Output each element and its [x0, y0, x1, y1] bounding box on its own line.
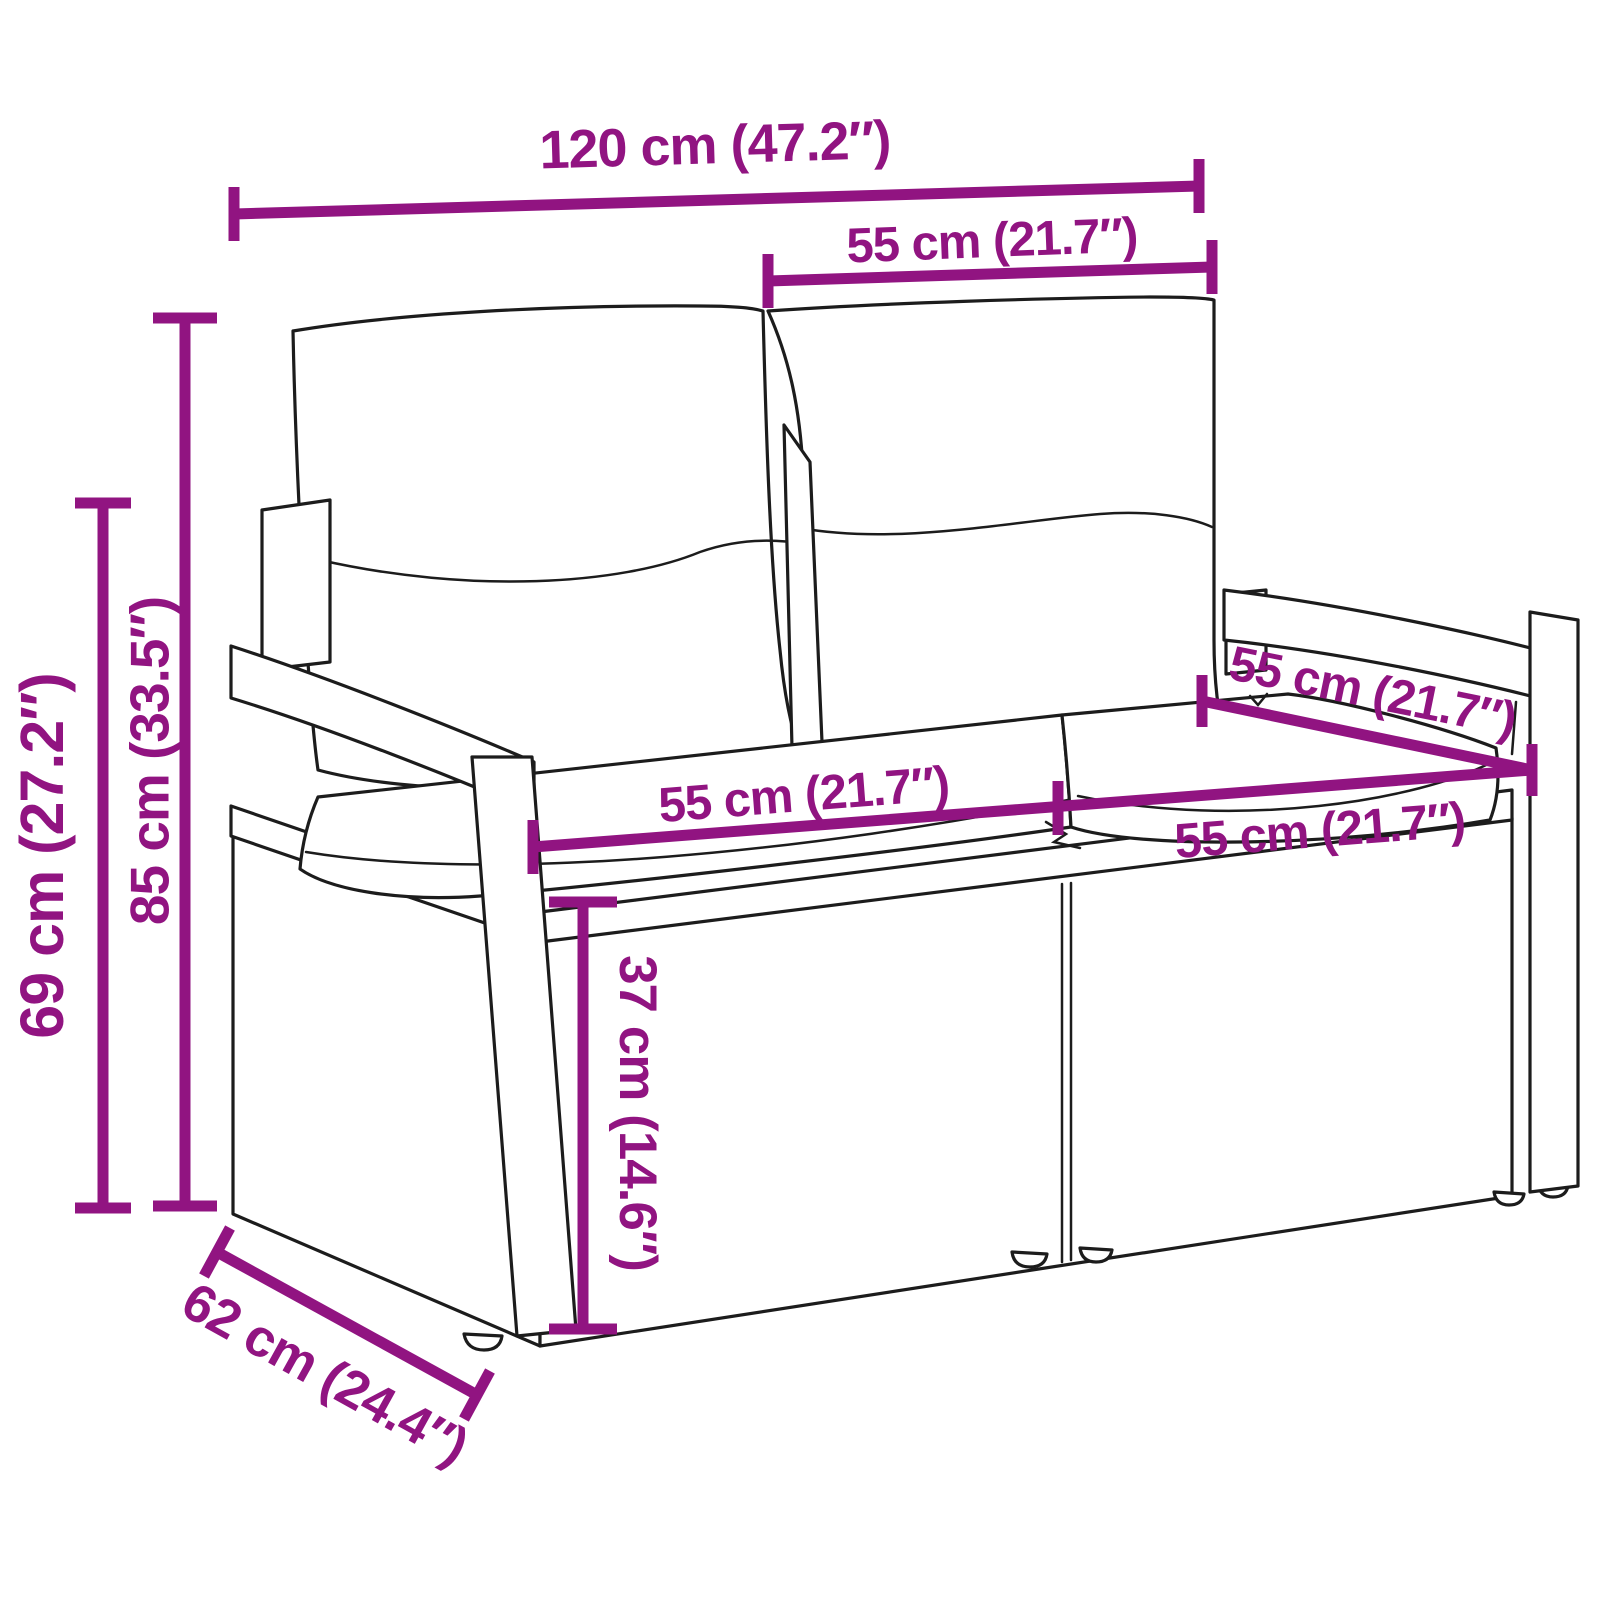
foot-front-left: [464, 1334, 502, 1350]
foot-front-right: [1494, 1192, 1524, 1205]
foot-seam-right: [1080, 1248, 1112, 1262]
bench-dimension-drawing: 120 cm (47.2″) 55 cm (21.7″) 85 cm (33.5…: [0, 0, 1600, 1600]
dim-back-cushion-width: 55 cm (21.7″): [768, 208, 1212, 308]
dim-armrest-height: 69 cm (27.2″): [8, 503, 131, 1208]
foot-seam-left: [1012, 1252, 1047, 1267]
dim-armrest-height-label: 69 cm (27.2″): [8, 673, 76, 1038]
dim-total-height-label: 85 cm (33.5″): [119, 597, 181, 925]
dimension-diagram: 120 cm (47.2″) 55 cm (21.7″) 85 cm (33.5…: [0, 0, 1600, 1600]
dim-overall-width-label: 120 cm (47.2″): [539, 110, 892, 180]
dim-total-height: 85 cm (33.5″): [119, 318, 217, 1206]
dim-back-cushion-width-label: 55 cm (21.7″): [845, 208, 1138, 273]
dim-seat-height-label: 37 cm (14.6″): [608, 955, 667, 1271]
left-armrest-back-post: [262, 500, 330, 670]
right-armrest-post: [1530, 612, 1578, 1192]
